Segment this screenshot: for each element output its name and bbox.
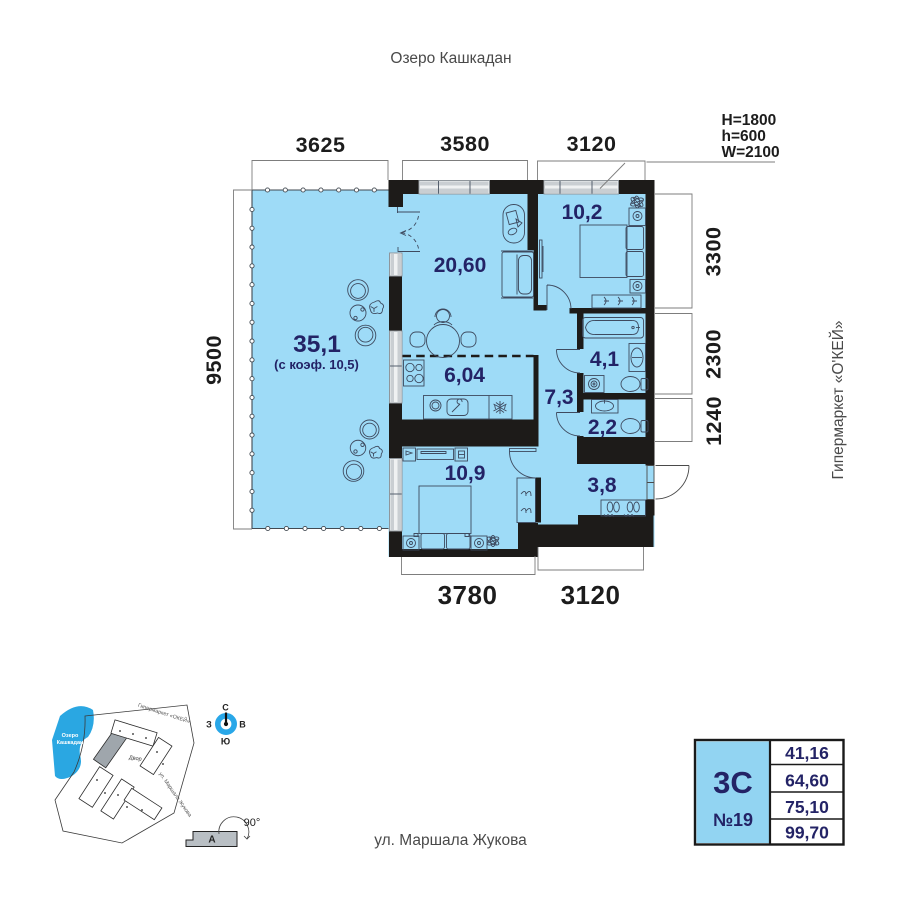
- svg-text:1240: 1240: [702, 396, 726, 446]
- svg-text:7,3: 7,3: [544, 386, 573, 409]
- svg-text:90°: 90°: [244, 817, 261, 829]
- svg-text:3580: 3580: [440, 132, 490, 156]
- svg-text:6,04: 6,04: [444, 364, 485, 387]
- svg-text:3120: 3120: [567, 132, 617, 156]
- svg-text:10,9: 10,9: [445, 462, 486, 485]
- svg-text:Озеро Кашкадан: Озеро Кашкадан: [390, 50, 511, 67]
- svg-text:№19: №19: [713, 810, 753, 830]
- svg-text:Ю: Ю: [221, 737, 230, 747]
- svg-text:В: В: [239, 720, 246, 730]
- svg-text:9500: 9500: [202, 335, 226, 385]
- svg-text:3780: 3780: [438, 580, 498, 610]
- svg-text:10,2: 10,2: [562, 201, 603, 224]
- svg-text:Гипермаркет «О'КЕЙ»: Гипермаркет «О'КЕЙ»: [829, 321, 847, 480]
- svg-text:ул. Маршала Жукова: ул. Маршала Жукова: [374, 832, 527, 849]
- svg-text:А: А: [208, 835, 215, 846]
- svg-text:H=1800: H=1800: [722, 112, 777, 129]
- svg-text:41,16: 41,16: [785, 743, 829, 763]
- svg-text:2,2: 2,2: [588, 416, 617, 439]
- svg-text:35,1: 35,1: [293, 331, 341, 358]
- svg-text:3625: 3625: [296, 133, 346, 157]
- svg-text:75,10: 75,10: [785, 797, 829, 817]
- svg-text:3120: 3120: [561, 580, 621, 610]
- svg-text:3С: 3С: [713, 765, 753, 800]
- svg-text:3,8: 3,8: [587, 474, 617, 497]
- svg-text:З: З: [206, 720, 212, 730]
- svg-text:W=2100: W=2100: [722, 144, 780, 161]
- svg-text:С: С: [222, 703, 229, 713]
- svg-text:20,60: 20,60: [434, 254, 487, 277]
- svg-text:2300: 2300: [702, 329, 726, 379]
- svg-text:3300: 3300: [702, 227, 726, 277]
- svg-text:(с коэф. 10,5): (с коэф. 10,5): [274, 357, 359, 372]
- svg-text:Озеро: Озеро: [62, 733, 79, 739]
- svg-text:99,70: 99,70: [785, 823, 829, 843]
- svg-text:4,1: 4,1: [590, 348, 620, 371]
- svg-text:Кашкадан: Кашкадан: [57, 740, 84, 746]
- svg-text:64,60: 64,60: [785, 771, 829, 791]
- svg-text:h=600: h=600: [722, 128, 766, 145]
